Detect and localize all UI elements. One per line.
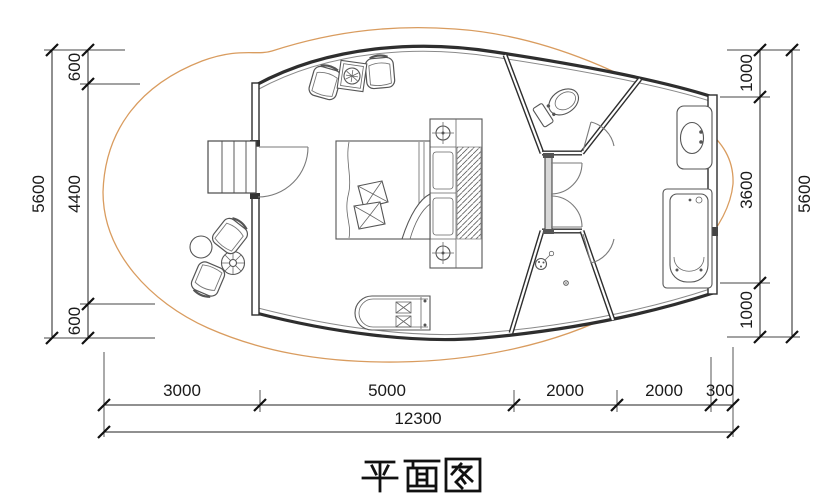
partition-cap-bottom — [543, 229, 554, 234]
storage-bench — [355, 296, 430, 330]
dim-label: 2000 — [645, 381, 683, 400]
dim-bottom: 3000 5000 2000 2000 300 12300 — [98, 347, 739, 438]
dim-label: 2000 — [546, 381, 584, 400]
partition-cap-top — [543, 153, 554, 158]
parasol-table — [222, 252, 245, 275]
floor-plan-svg: 600 4400 600 5600 1000 3600 1000 5600 30… — [0, 0, 837, 496]
dim-label: 1000 — [737, 291, 756, 329]
lounge-chair-right — [365, 54, 396, 89]
dim-right: 1000 3600 1000 5600 — [720, 44, 814, 343]
dim-label: 5000 — [368, 381, 406, 400]
double-bed — [336, 141, 430, 239]
dim-label: 4400 — [65, 175, 84, 213]
nightstand-wardrobe-unit — [430, 119, 482, 268]
deck-chair-lower — [188, 260, 226, 301]
left-wall-upper — [252, 83, 259, 146]
dim-left: 600 4400 600 5600 — [29, 44, 155, 344]
dim-label: 600 — [65, 53, 84, 81]
left-wall-lower — [252, 197, 259, 315]
dim-label: 300 — [706, 381, 734, 400]
door-jamb-bottom — [250, 193, 260, 199]
washbasin — [677, 106, 712, 169]
floor-plan-page: 600 4400 600 5600 1000 3600 1000 5600 30… — [0, 0, 837, 496]
dim-label: 12300 — [394, 409, 441, 428]
wardrobe-hanging-rail — [457, 147, 481, 239]
side-table — [190, 236, 212, 258]
fire-table — [337, 60, 367, 91]
dim-label: 1000 — [737, 54, 756, 92]
deck-chair-upper — [210, 214, 252, 257]
dim-label: 5600 — [795, 175, 814, 213]
page-title: 平面图 — [370, 457, 472, 495]
dim-label: 3600 — [737, 171, 756, 209]
dim-label: 3000 — [163, 381, 201, 400]
entry-steps — [208, 141, 256, 193]
bathtub — [663, 189, 712, 288]
dim-label: 600 — [65, 307, 84, 335]
center-partition — [545, 157, 552, 230]
dim-label: 5600 — [29, 175, 48, 213]
